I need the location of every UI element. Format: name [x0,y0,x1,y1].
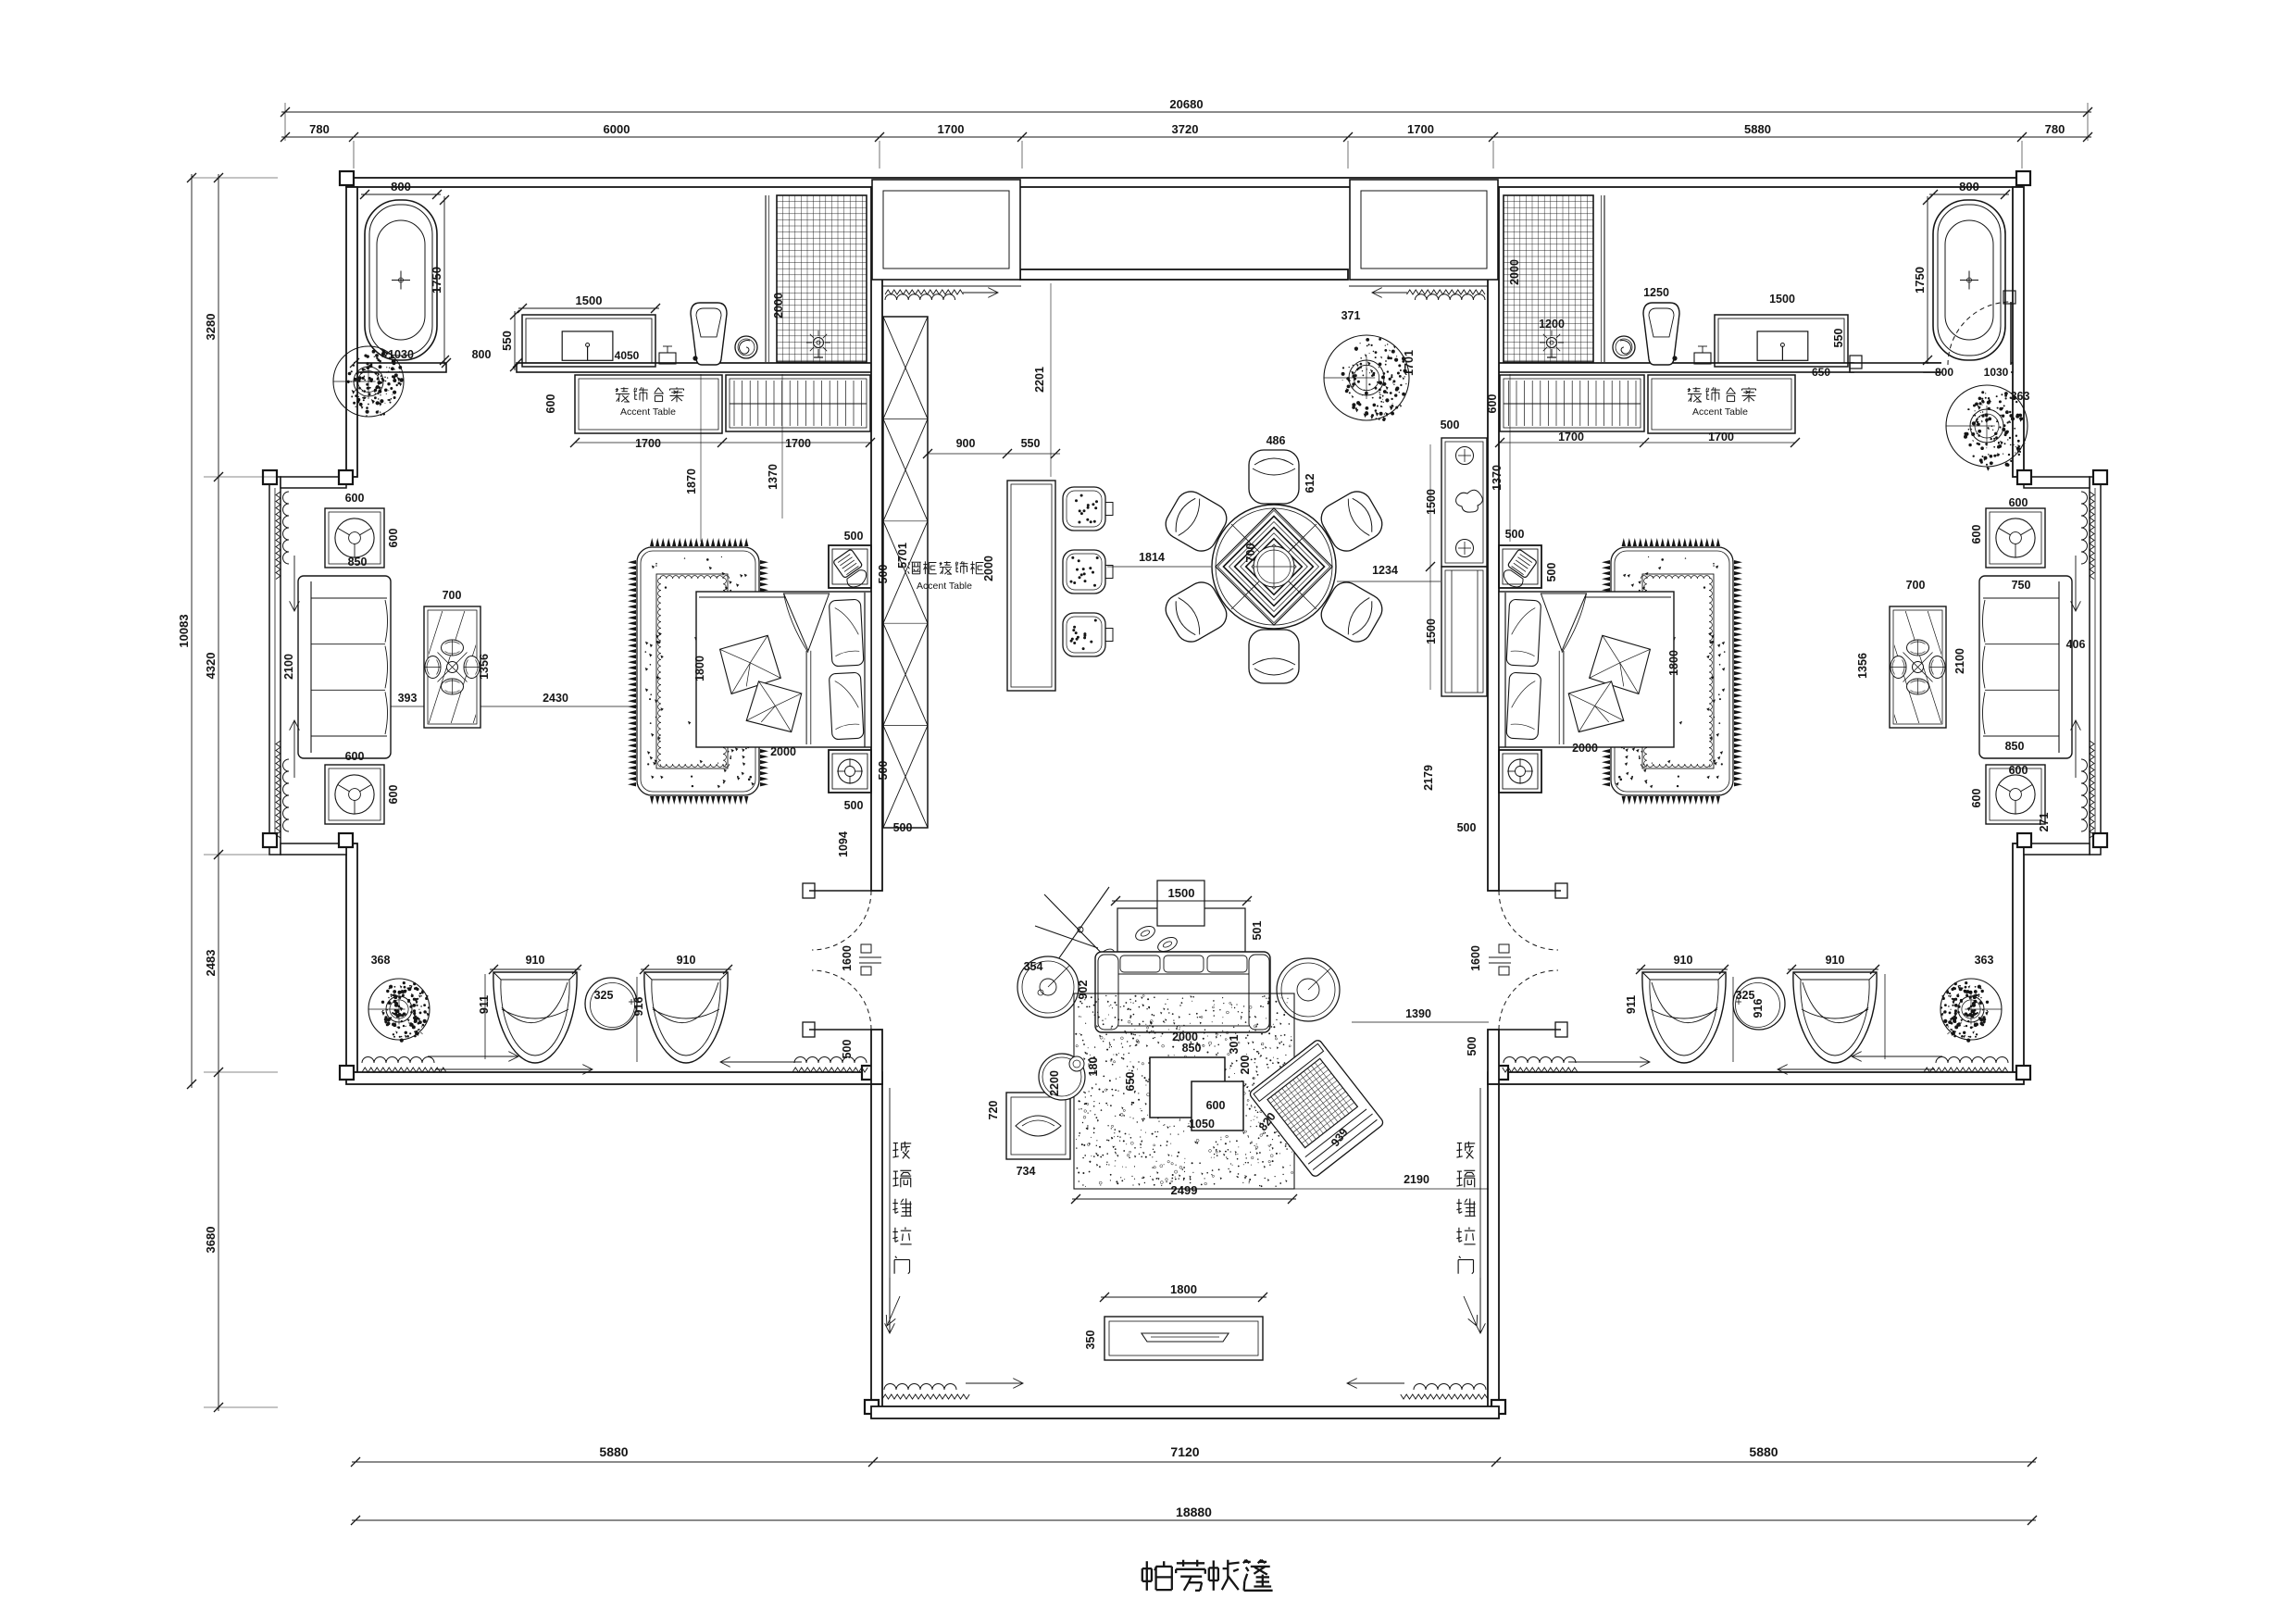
svg-text:612: 612 [1304,474,1316,493]
svg-text:1800: 1800 [1170,1282,1197,1296]
svg-text:1800: 1800 [1667,650,1680,676]
svg-text:911: 911 [478,995,491,1014]
svg-text:301: 301 [1228,1035,1241,1055]
svg-text:600: 600 [2009,764,2028,777]
svg-text:600: 600 [1486,394,1499,414]
svg-text:180: 180 [1087,1057,1100,1077]
svg-text:2000: 2000 [1508,259,1521,285]
svg-text:700: 700 [443,589,462,602]
svg-text:780: 780 [309,122,330,136]
svg-text:650: 650 [1124,1072,1137,1092]
svg-text:3280: 3280 [204,314,218,341]
svg-text:1094: 1094 [837,831,850,857]
svg-text:6000: 6000 [604,122,630,136]
svg-text:911: 911 [1625,995,1638,1014]
svg-text:2000: 2000 [772,293,785,319]
svg-text:720: 720 [987,1101,1000,1120]
svg-text:1250: 1250 [1643,286,1669,299]
svg-text:600: 600 [345,750,365,763]
svg-text:500: 500 [893,821,913,834]
svg-text:1390: 1390 [1405,1007,1431,1020]
svg-text:7120: 7120 [1170,1444,1199,1459]
svg-text:500: 500 [1441,418,1460,431]
svg-text:910: 910 [677,954,696,967]
svg-text:5880: 5880 [1744,122,1771,136]
svg-text:4320: 4320 [204,653,218,680]
svg-text:1500: 1500 [1425,618,1438,644]
svg-text:1814: 1814 [1139,551,1165,564]
svg-text:600: 600 [345,492,365,505]
svg-text:2000: 2000 [770,745,796,758]
svg-text:900: 900 [956,437,976,450]
svg-text:800: 800 [391,180,411,194]
svg-text:1200: 1200 [1539,318,1565,331]
svg-text:1600: 1600 [841,945,854,971]
svg-text:910: 910 [526,954,545,967]
svg-text:4050: 4050 [615,349,640,362]
svg-text:500: 500 [1457,821,1477,834]
svg-text:600: 600 [1970,525,1983,544]
svg-text:2000: 2000 [1572,742,1598,755]
svg-text:486: 486 [1267,434,1286,447]
svg-text:1700: 1700 [1407,122,1434,136]
svg-text:325: 325 [1736,989,1755,1002]
svg-text:1700: 1700 [1708,431,1734,443]
svg-text:500: 500 [841,1040,854,1059]
svg-text:1500: 1500 [1425,489,1438,515]
svg-text:1701: 1701 [1403,350,1416,376]
svg-text:1800: 1800 [693,656,706,681]
svg-text:1870: 1870 [685,468,698,494]
svg-text:600: 600 [387,785,400,805]
svg-text:850: 850 [348,556,368,568]
svg-text:5880: 5880 [599,1444,628,1459]
svg-text:2201: 2201 [1033,367,1046,393]
svg-text:5701: 5701 [896,543,909,568]
svg-text:2179: 2179 [1422,765,1435,791]
svg-text:500: 500 [844,799,864,812]
svg-text:2100: 2100 [1953,648,1966,674]
svg-text:20680: 20680 [1169,97,1203,111]
svg-text:700: 700 [1906,579,1926,592]
svg-text:1030: 1030 [1984,366,2009,379]
svg-text:500: 500 [844,530,864,543]
svg-text:2190: 2190 [1404,1173,1429,1186]
svg-text:10083: 10083 [177,614,191,647]
svg-text:Accent Table: Accent Table [917,581,972,592]
svg-text:600: 600 [544,394,557,414]
svg-text:1500: 1500 [1769,293,1795,306]
svg-text:1500: 1500 [576,294,603,307]
svg-text:5880: 5880 [1749,1444,1778,1459]
svg-text:916: 916 [632,997,645,1017]
svg-text:734: 734 [1017,1165,1036,1178]
svg-text:1356: 1356 [478,654,491,680]
svg-text:1750: 1750 [1913,267,1927,294]
svg-text:2200: 2200 [1048,1070,1061,1096]
svg-text:800: 800 [1935,366,1953,379]
svg-text:780: 780 [2045,122,2065,136]
svg-text:271: 271 [2038,813,2051,832]
svg-text:500: 500 [877,761,890,781]
svg-text:2100: 2100 [282,654,295,680]
svg-text:501: 501 [1251,921,1264,941]
svg-text:354: 354 [1024,960,1043,973]
svg-text:2483: 2483 [204,950,218,977]
svg-text:600: 600 [2009,496,2028,509]
svg-text:2000: 2000 [982,556,995,581]
svg-text:1700: 1700 [938,122,965,136]
svg-text:1370: 1370 [767,464,780,490]
svg-text:600: 600 [387,529,400,548]
svg-text:910: 910 [1674,954,1693,967]
svg-text:1750: 1750 [430,267,443,294]
svg-text:3680: 3680 [204,1227,218,1254]
svg-text:363: 363 [1975,954,1994,967]
svg-text:3720: 3720 [1172,122,1199,136]
svg-text:1050: 1050 [1189,1118,1215,1131]
svg-text:902: 902 [1077,981,1090,1000]
svg-text:2430: 2430 [543,692,568,705]
svg-text:800: 800 [1959,180,1979,194]
svg-text:500: 500 [877,565,890,584]
svg-text:200: 200 [1239,1056,1252,1075]
svg-text:325: 325 [594,989,614,1002]
svg-text:406: 406 [2066,638,2086,651]
svg-text:1600: 1600 [1469,945,1482,971]
svg-text:1700: 1700 [635,437,661,450]
svg-text:600: 600 [1970,789,1983,808]
svg-text:393: 393 [398,692,418,705]
svg-text:500: 500 [1505,528,1525,541]
svg-text:850: 850 [1182,1042,1202,1055]
svg-text:2499: 2499 [1171,1183,1198,1197]
svg-text:1700: 1700 [1558,431,1584,443]
svg-text:Accent Table: Accent Table [620,406,676,418]
svg-text:910: 910 [1826,954,1845,967]
svg-text:550: 550 [500,331,514,351]
svg-text:363: 363 [2011,390,2030,403]
svg-text:1234: 1234 [1372,564,1398,577]
svg-text:350: 350 [1084,1330,1097,1350]
svg-text:750: 750 [2012,579,2031,592]
svg-text:800: 800 [472,348,492,361]
svg-text:600: 600 [1206,1099,1226,1112]
svg-text:1030: 1030 [388,348,414,361]
svg-text:1500: 1500 [1168,886,1195,900]
svg-text:650: 650 [1812,366,1830,379]
svg-text:368: 368 [371,954,391,967]
svg-text:371: 371 [1341,309,1361,322]
svg-text:Accent Table: Accent Table [1692,406,1748,418]
svg-text:1700: 1700 [785,437,811,450]
svg-text:1356: 1356 [1856,653,1869,679]
svg-text:550: 550 [1021,437,1041,450]
svg-text:1370: 1370 [1491,465,1504,491]
svg-text:500: 500 [1545,563,1558,582]
svg-text:700: 700 [1244,543,1257,563]
svg-text:550: 550 [1832,329,1845,348]
svg-text:18880: 18880 [1176,1505,1212,1519]
svg-text:850: 850 [2005,740,2025,753]
svg-text:500: 500 [1466,1037,1479,1056]
